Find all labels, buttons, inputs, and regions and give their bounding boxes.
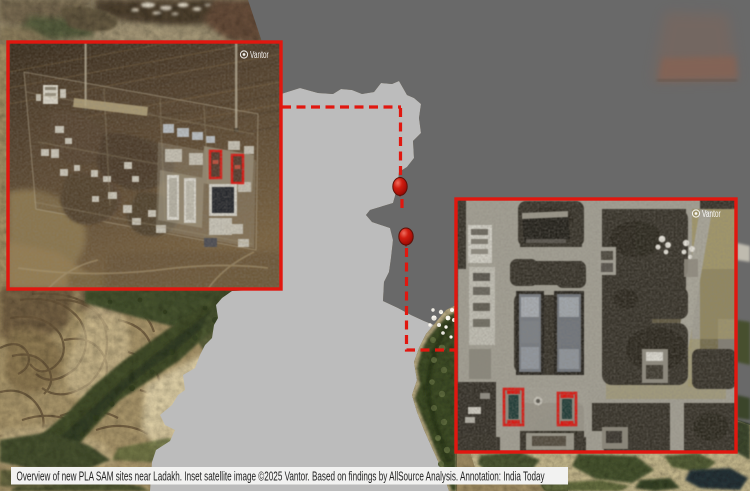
svg-text:Vantor: Vantor xyxy=(250,48,269,60)
svg-text:Vantor: Vantor xyxy=(702,207,721,219)
svg-text:Overview of new PLA SAM sites: Overview of new PLA SAM sites near Ladak… xyxy=(17,470,546,484)
